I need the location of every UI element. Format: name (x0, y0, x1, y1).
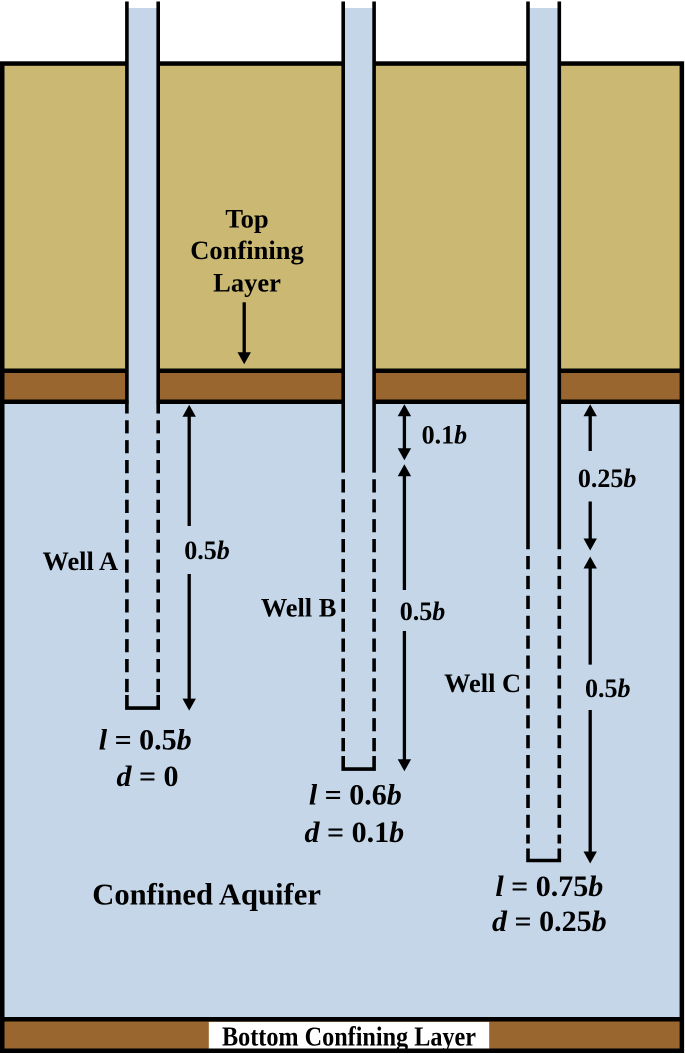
svg-text:Well C: Well C (444, 668, 521, 698)
svg-text:Well B: Well B (261, 592, 337, 622)
svg-text:0.25b: 0.25b (578, 464, 637, 493)
svg-text:0.5b: 0.5b (400, 597, 446, 626)
svg-text:d = 0.25b: d = 0.25b (492, 905, 607, 938)
svg-text:0.1b: 0.1b (422, 420, 468, 449)
svg-text:Well A: Well A (43, 546, 119, 576)
svg-text:l = 0.5b: l = 0.5b (99, 724, 192, 757)
svg-text:Layer: Layer (213, 268, 281, 298)
svg-text:Top: Top (225, 204, 268, 234)
svg-text:l = 0.6b: l = 0.6b (309, 779, 402, 812)
svg-text:Confined Aquifer: Confined Aquifer (92, 878, 321, 912)
svg-text:l = 0.75b: l = 0.75b (495, 870, 603, 903)
svg-text:Confining: Confining (190, 235, 303, 265)
svg-text:d = 0: d = 0 (116, 760, 178, 793)
svg-text:0.5b: 0.5b (184, 536, 230, 565)
svg-text:d = 0.1b: d = 0.1b (304, 816, 404, 849)
svg-text:Bottom Confining Layer: Bottom Confining Layer (222, 1020, 476, 1051)
svg-text:0.5b: 0.5b (585, 674, 631, 703)
